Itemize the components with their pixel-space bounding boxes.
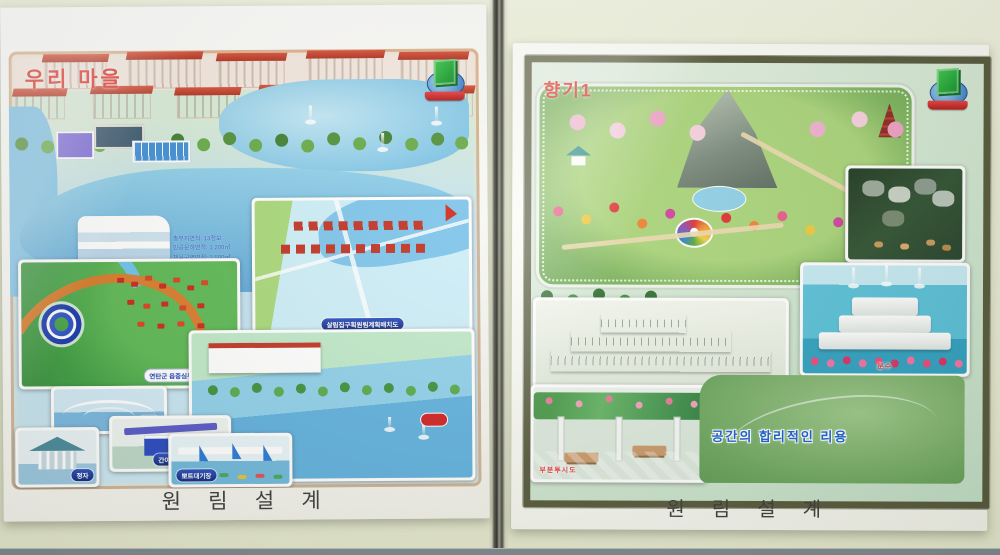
- deer-dots: [874, 241, 883, 247]
- pavilion-columns: [39, 451, 77, 470]
- fountain-jet: [852, 268, 855, 286]
- pagoda: [878, 103, 900, 137]
- wall-panel-divider: [489, 0, 509, 555]
- pergola-image: 부분투시도: [533, 387, 704, 480]
- rock-mountain: [677, 89, 778, 188]
- fountain-image: 분수: [803, 265, 967, 374]
- pergola-inset: 부분투시도: [530, 384, 707, 483]
- swimming-pool: [132, 140, 190, 162]
- left-poster-title: 우리 마을: [25, 63, 123, 94]
- exhibition-wall-photo: 총부지면적: 13정보 인공운하면적: 1 200㎡ 체육구역면적: 1 500…: [0, 0, 1000, 555]
- fountain-jet: [309, 106, 312, 122]
- design-studio-emblem-icon: [928, 68, 968, 116]
- teal-gazebo: [565, 146, 591, 166]
- emblem-cube: [434, 59, 456, 86]
- vine-flowers: [546, 397, 553, 404]
- building-level: [571, 330, 731, 351]
- fountain-jet: [918, 268, 921, 286]
- right-poster-title: 향기1: [544, 76, 593, 102]
- right-poster-artwork: 분수: [523, 55, 991, 509]
- building-row: [281, 244, 431, 254]
- building-level: [551, 349, 771, 372]
- left-poster-artwork: 총부지면적: 13정보 인공운하면적: 1 200㎡ 체육구역면적: 1 500…: [9, 48, 482, 489]
- right-poster-sheet: 분수: [511, 43, 989, 531]
- target-circle-icon: [41, 304, 81, 344]
- emblem-ribbon: [928, 101, 968, 110]
- right-poster-footer: 원 림 설 계: [511, 492, 987, 523]
- design-studio-emblem-icon: [425, 58, 465, 106]
- left-poster-footer: 원 림 설 계: [4, 483, 490, 516]
- left-poster-sheet: 총부지면적: 13정보 인공운하면적: 1 200㎡ 체육구역면적: 1 500…: [0, 4, 490, 521]
- pavilion-caption: 정자: [71, 469, 93, 481]
- road-lines: [255, 199, 470, 334]
- floor-baseboard: [0, 548, 1000, 555]
- garden-path: [562, 222, 785, 250]
- red-roof-lodge: [208, 343, 320, 374]
- blossom-trees: [570, 114, 586, 130]
- building-level: [601, 314, 686, 333]
- pavilion-roof: [29, 437, 85, 451]
- flower-beds: [553, 206, 563, 216]
- building-dots: [117, 278, 124, 283]
- deer-image: [848, 168, 962, 259]
- stat-line: 인공운하면적: 1 200㎡: [173, 244, 249, 254]
- fountain-jet: [381, 133, 384, 149]
- boat-station-image: 뽀트대기장: [171, 436, 289, 485]
- boat-station-caption: 뽀트대기장: [176, 469, 216, 481]
- fountain-tier: [839, 315, 931, 333]
- pavilion-image: 정자: [18, 430, 96, 485]
- flower-ring: [811, 357, 819, 365]
- fountain-tier: [819, 332, 950, 350]
- red-label-badge: [421, 413, 447, 425]
- building-row: [293, 221, 426, 231]
- housing-block-plan-inset: 살림집구획원림계획배치도: [252, 196, 473, 338]
- village-building: [93, 93, 151, 119]
- stat-line: 총부지면적: 13정보: [173, 235, 249, 245]
- emblem-ribbon: [425, 91, 465, 100]
- village-building: [129, 58, 201, 89]
- boat-station-inset: 뽀트대기장: [168, 433, 292, 488]
- sail-icon: [200, 445, 209, 461]
- tree-dots: [208, 385, 218, 395]
- floating-boathouse: [78, 216, 170, 264]
- fountain-inset: 분수: [800, 262, 970, 377]
- fountain-jet: [885, 265, 888, 283]
- plan-map-image: 살림집구획원림계획배치도: [255, 199, 470, 334]
- rock-garden-deer-inset: [845, 165, 965, 262]
- pergola-caption: 부분투시도: [539, 465, 576, 475]
- tree-row: [15, 138, 28, 151]
- sail-icon: [233, 443, 242, 459]
- slogan-text: 공간의 합리적인 리용: [711, 426, 848, 445]
- fountain-jet: [435, 107, 438, 123]
- fountain-caption: 분수: [877, 361, 892, 371]
- rock-shapes: [862, 180, 884, 196]
- emblem-cube: [937, 68, 959, 94]
- pavilion-inset: 정자: [15, 427, 99, 488]
- fountain-jet: [388, 417, 391, 429]
- fountain-tier: [852, 298, 918, 315]
- fountain-jet: [422, 425, 425, 437]
- tennis-court: [56, 131, 94, 159]
- sail-icon: [263, 444, 272, 460]
- garden-pond: [692, 186, 746, 212]
